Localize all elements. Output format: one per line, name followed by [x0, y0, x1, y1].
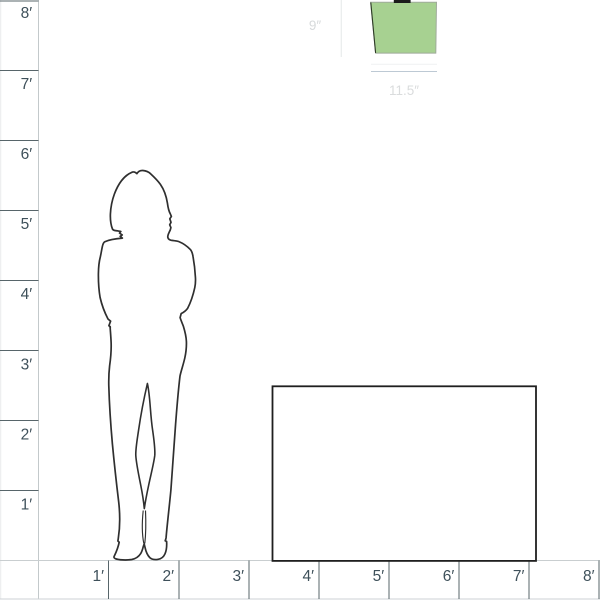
svg-text:1′: 1′ — [21, 497, 33, 514]
svg-text:4′: 4′ — [302, 568, 314, 585]
svg-text:6′: 6′ — [21, 146, 33, 163]
svg-text:2′: 2′ — [21, 427, 33, 444]
svg-text:5′: 5′ — [373, 568, 385, 585]
svg-text:6′: 6′ — [443, 568, 455, 585]
svg-text:7′: 7′ — [21, 76, 33, 93]
svg-text:7′: 7′ — [513, 568, 525, 585]
svg-text:4′: 4′ — [21, 286, 33, 303]
svg-text:3′: 3′ — [232, 568, 244, 585]
svg-text:11.5″: 11.5″ — [389, 83, 419, 98]
svg-text:8′: 8′ — [21, 5, 33, 22]
svg-text:9″: 9″ — [309, 18, 322, 33]
svg-text:1′: 1′ — [92, 568, 104, 585]
svg-text:5′: 5′ — [21, 216, 33, 233]
svg-text:3′: 3′ — [21, 357, 33, 374]
svg-text:8′: 8′ — [583, 568, 595, 585]
svg-text:2′: 2′ — [162, 568, 174, 585]
